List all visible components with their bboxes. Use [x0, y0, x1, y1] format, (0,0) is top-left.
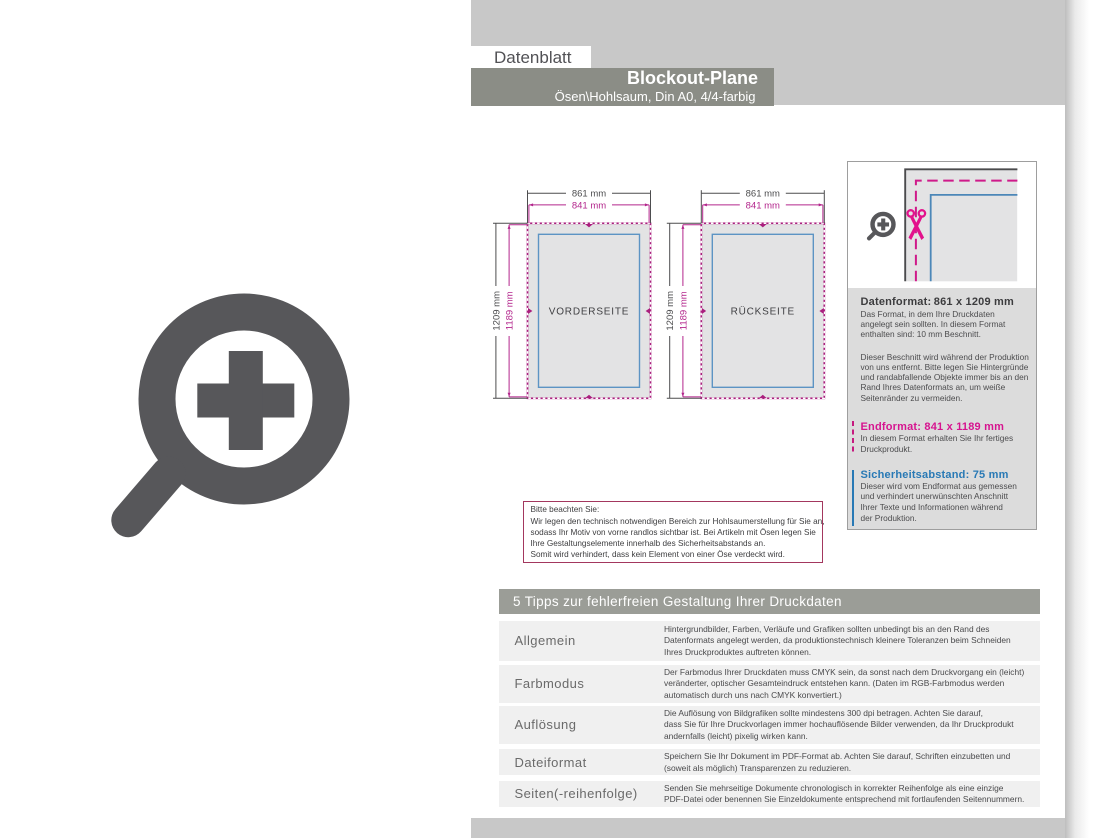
svg-text:841 mm: 841 mm: [746, 200, 780, 211]
svg-text:1189 mm: 1189 mm: [679, 291, 690, 330]
svg-text:861 mm: 861 mm: [746, 189, 780, 200]
svg-text:1189 mm: 1189 mm: [505, 291, 516, 330]
svg-text:RÜCKSEITE: RÜCKSEITE: [731, 306, 795, 318]
svg-text:841 mm: 841 mm: [572, 200, 606, 211]
svg-text:1209 mm: 1209 mm: [491, 291, 502, 331]
svg-text:861 mm: 861 mm: [572, 189, 606, 200]
svg-text:1209 mm: 1209 mm: [665, 291, 676, 331]
svg-text:VORDERSEITE: VORDERSEITE: [549, 307, 629, 318]
